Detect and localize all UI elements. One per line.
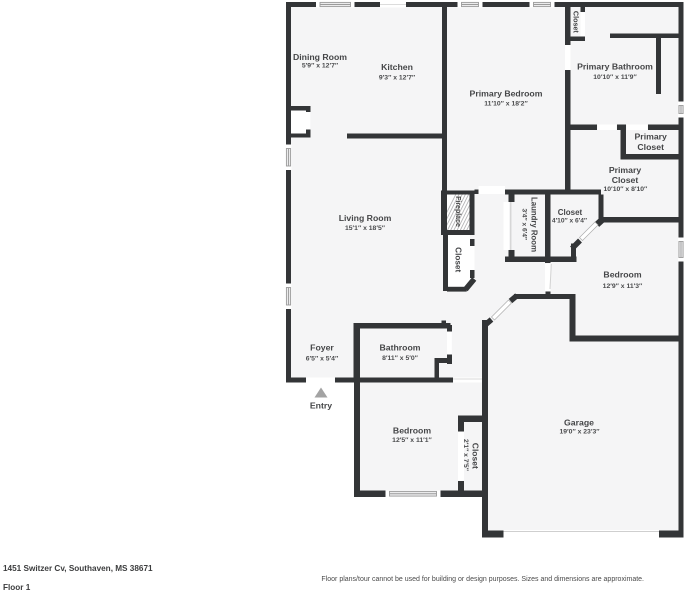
svg-text:Primary Bedroom: Primary Bedroom [470,89,543,99]
svg-text:5′9″ x 12′7″: 5′9″ x 12′7″ [302,63,339,70]
svg-text:8′11″ x 5′0″: 8′11″ x 5′0″ [382,355,419,362]
svg-text:15′1″ x 18′5″: 15′1″ x 18′5″ [345,225,386,232]
svg-text:2′1″ x 7′5″: 2′1″ x 7′5″ [462,439,469,472]
svg-text:Laundry Room: Laundry Room [529,197,538,252]
svg-text:Garage: Garage [564,418,594,428]
svg-text:Closet: Closet [572,11,581,34]
svg-text:Closet: Closet [470,443,480,469]
svg-text:Fireplace: Fireplace [454,196,461,227]
svg-text:Primary: Primary [609,165,642,175]
svg-text:Closet: Closet [558,208,583,217]
svg-text:Bathroom: Bathroom [379,343,420,353]
svg-text:Entry: Entry [310,401,332,411]
svg-text:10′10″ x 8′10″: 10′10″ x 8′10″ [604,186,649,193]
svg-text:12′5″ x 11′1″: 12′5″ x 11′1″ [392,437,432,444]
svg-text:Dining Room: Dining Room [293,52,347,62]
svg-text:6′5″ x 5′4″: 6′5″ x 5′4″ [306,356,339,363]
svg-text:Foyer: Foyer [310,343,334,353]
svg-text:12′9″ x 11′3″: 12′9″ x 11′3″ [603,283,643,290]
svg-text:3′4″ x 6′4″: 3′4″ x 6′4″ [520,209,527,241]
svg-text:9′3″ x 12′7″: 9′3″ x 12′7″ [379,75,416,82]
svg-text:Closet: Closet [612,175,639,185]
svg-text:19′0″ x 23′3″: 19′0″ x 23′3″ [559,429,600,436]
svg-text:Closet: Closet [454,247,463,272]
svg-text:Living Room: Living Room [339,213,392,223]
svg-text:10′10″ x 11′9″: 10′10″ x 11′9″ [593,74,637,81]
svg-text:Closet: Closet [637,142,664,152]
svg-text:4′10″ x 6′4″: 4′10″ x 6′4″ [552,217,588,224]
svg-text:Primary Bathroom: Primary Bathroom [577,62,653,72]
svg-text:11′10″ x 18′2″: 11′10″ x 18′2″ [484,100,528,107]
svg-text:Bedroom: Bedroom [603,270,641,280]
svg-text:Bedroom: Bedroom [393,426,431,436]
svg-text:Primary: Primary [635,132,668,142]
svg-text:Kitchen: Kitchen [381,62,413,72]
